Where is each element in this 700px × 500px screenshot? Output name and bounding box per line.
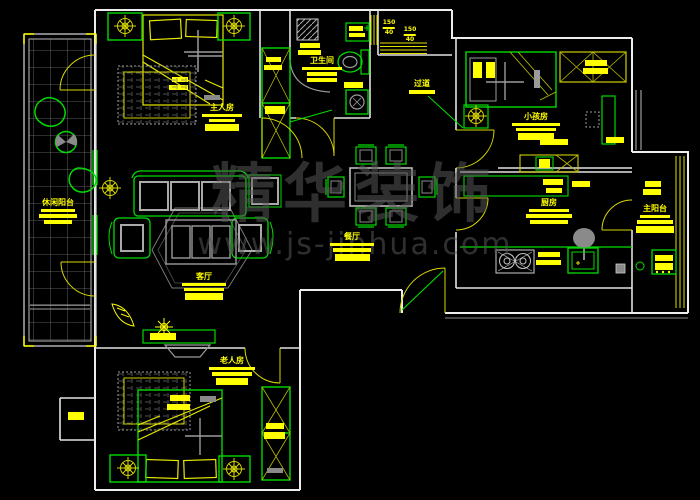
label-underline: [202, 114, 242, 117]
label-underline: [335, 254, 370, 261]
kitchen: [460, 176, 632, 273]
room-label-bathroom: 卫生间: [302, 57, 342, 82]
stove-icon: [496, 250, 534, 273]
label-underline: [516, 128, 556, 131]
room-label-master-bedroom: 主人房: [202, 104, 242, 131]
label-underline: [209, 119, 235, 122]
sink-icon: [346, 90, 368, 114]
label-underline: [302, 67, 342, 70]
window-right: [636, 90, 641, 150]
drain-icon: [636, 262, 644, 270]
sofa: [132, 171, 248, 216]
room-label-elder-room: 老人房: [209, 357, 255, 385]
bed-side-table: [185, 418, 222, 455]
small-appliance: [616, 264, 625, 273]
kids-bed: [466, 52, 556, 107]
label-underline: [526, 214, 572, 218]
dim-tag: [68, 412, 84, 420]
desk: [586, 96, 624, 144]
dimension-label: 150 40: [383, 20, 396, 36]
label-underline: [209, 367, 255, 370]
leisure-balcony: [24, 34, 96, 346]
label-underline: [409, 90, 435, 94]
label-underline: [307, 72, 337, 76]
dining-table: [350, 168, 412, 206]
label-underline: [637, 220, 673, 224]
room-label-corridor: 过道: [409, 80, 435, 94]
label-underline: [636, 226, 674, 233]
hatch-cabinet: [297, 19, 318, 40]
label-underline: [216, 378, 248, 385]
label-underline: [182, 283, 226, 286]
washing-machine-icon: [652, 250, 676, 274]
label-underline: [518, 133, 554, 140]
master-rug: [118, 66, 196, 124]
room-label-main-balcony: 主阳台: [636, 205, 674, 233]
dining-chair: [328, 177, 344, 197]
living-room: [109, 171, 281, 357]
master-bedroom: [118, 15, 290, 158]
toilet-icon: [338, 50, 369, 74]
floor-plan-canvas: 精华装饰 www.js-jinhua.com: [0, 0, 700, 500]
bed-tag-gray: [204, 95, 220, 100]
tv-cabinet-kids: [520, 155, 578, 172]
bath-door-leaf: [290, 110, 332, 122]
dining-chair: [419, 177, 435, 197]
room-label-leisure-balcony: 休闲阳台: [39, 199, 77, 224]
side-table: [249, 175, 281, 207]
corridor-leader-line: [428, 96, 463, 128]
armchair: [232, 218, 273, 258]
label-underline: [185, 293, 223, 300]
label-underline: [529, 209, 569, 212]
label-underline: [39, 214, 77, 218]
door-balcony: [602, 200, 632, 230]
kitchen-sink-icon: [568, 228, 598, 273]
door-kids: [456, 130, 494, 168]
bathroom-cabinet: [346, 23, 370, 41]
room-label-dining: 餐厅: [330, 233, 374, 261]
label-underline: [212, 372, 252, 376]
label-underline: [333, 248, 371, 252]
decor-leaf-icon: [112, 304, 134, 326]
label-underline: [512, 123, 560, 126]
kids-room: [466, 52, 641, 172]
entry-door-leaf: [402, 271, 443, 310]
label-underline: [640, 215, 670, 218]
wardrobe-tag: [266, 57, 281, 62]
label-underline: [307, 78, 337, 82]
tv-cabinet: [143, 330, 215, 357]
dining-set: [326, 145, 437, 227]
elder-room: [68, 372, 290, 482]
dimension-label: 150 40: [404, 27, 417, 43]
wardrobe-tag: [265, 106, 285, 114]
balcony-window-hatch: [676, 156, 684, 308]
tv-icon: [165, 345, 210, 357]
label-underline: [205, 124, 239, 131]
label-underline: [330, 243, 374, 246]
label-underline: [44, 220, 72, 224]
room-label-kitchen: 厨房: [526, 199, 572, 224]
room-label-living: 客厅: [182, 273, 226, 300]
room-label-kids-room: 小孩房: [512, 113, 560, 140]
wardrobe-tag: [264, 65, 282, 70]
label-underline: [530, 220, 568, 224]
window-hatch: [371, 15, 427, 54]
coffee-table: [166, 220, 236, 264]
door-master: [262, 118, 302, 158]
armchair: [109, 218, 150, 258]
door-kitchen: [456, 198, 488, 230]
label-underline: [41, 209, 75, 212]
label-underline: [184, 288, 224, 291]
master-wardrobe: [262, 48, 290, 158]
kids-wardrobe: [560, 52, 626, 82]
